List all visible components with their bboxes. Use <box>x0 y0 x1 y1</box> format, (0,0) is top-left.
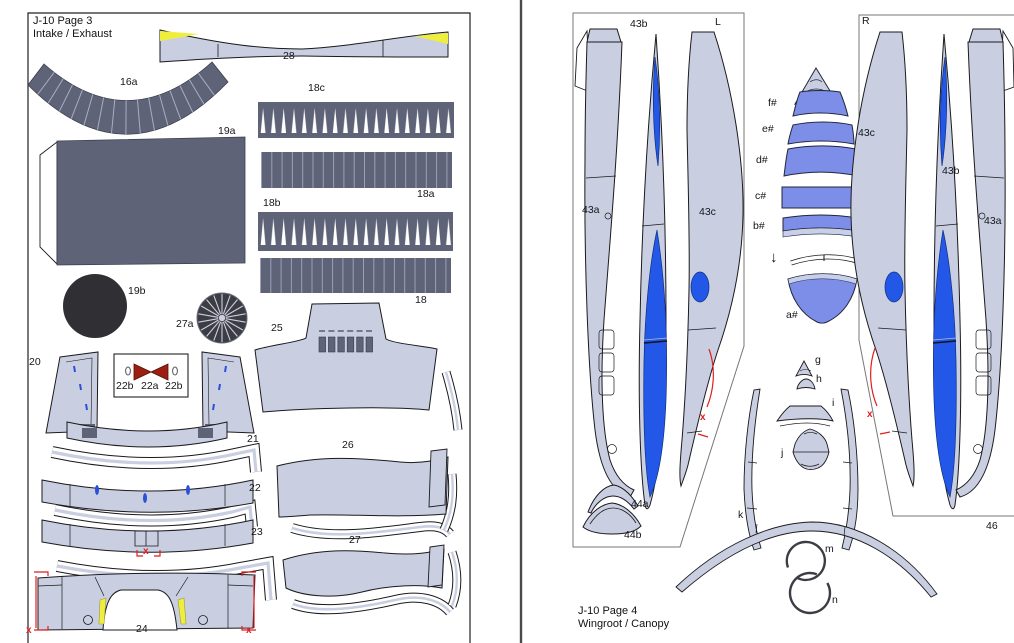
part-19a <box>40 137 245 265</box>
part-24 <box>34 572 256 630</box>
label-k: k <box>738 510 743 522</box>
page3-title-line1: J-10 Page 3 <box>33 15 92 27</box>
part-h <box>797 379 815 389</box>
part-j <box>793 429 829 470</box>
label-h: h <box>816 374 822 386</box>
blue-oval-mark <box>95 485 99 495</box>
label-20: 20 <box>29 357 41 369</box>
part-43b-left <box>639 34 667 509</box>
label-24: 24 <box>136 624 148 636</box>
label-22a: 22a <box>141 381 159 393</box>
canopy-segments <box>782 68 858 323</box>
part-22-band <box>42 480 253 512</box>
label-16a: 16a <box>120 77 138 89</box>
label-j: j <box>781 448 783 460</box>
papercraft-sheet: J-10 Page 3 Intake / Exhaust 28 16a 19a … <box>0 0 1014 643</box>
part-43b-right <box>933 34 961 509</box>
small-frame-parts <box>777 361 833 470</box>
segment-e <box>788 122 854 144</box>
label-c-sharp: c# <box>755 191 766 203</box>
blue-oval-mark <box>186 485 190 495</box>
label-23: 23 <box>251 527 263 539</box>
strip-27 <box>293 598 450 612</box>
part-i <box>777 406 833 421</box>
ring-parts <box>787 542 830 613</box>
label-i: i <box>832 398 834 410</box>
label-side-L: L <box>715 17 721 29</box>
part-27a <box>197 293 247 343</box>
label-18c: 18c <box>308 83 325 95</box>
blue-oval-mark <box>143 493 147 503</box>
red-x-mark: x <box>700 412 706 423</box>
label-43a-left: 43a <box>582 205 600 217</box>
part-43a-right <box>956 29 1014 497</box>
part-25 <box>255 303 437 412</box>
strip-26 <box>292 526 450 534</box>
part-18b <box>258 212 453 251</box>
label-g: g <box>815 355 821 367</box>
part-28 <box>160 30 448 62</box>
label-25: 25 <box>271 323 283 335</box>
label-m: m <box>825 544 834 556</box>
label-26: 26 <box>342 440 354 452</box>
part-k-bow <box>676 522 937 597</box>
label-e-sharp: e# <box>762 124 774 136</box>
label-43b-left: 43b <box>630 19 648 31</box>
page3-title-line2: Intake / Exhaust <box>33 28 112 40</box>
label-18a: 18a <box>417 189 435 201</box>
red-x-mark: x <box>143 546 149 557</box>
strip-right-c <box>452 552 457 606</box>
segment-d <box>784 146 858 176</box>
part-18c <box>258 102 454 138</box>
label-43b-right: 43b <box>942 166 960 178</box>
red-x-mark: x <box>867 409 873 420</box>
segment-c <box>782 187 857 208</box>
segment-b-pale-edge <box>783 228 858 237</box>
red-x-mark: x <box>26 625 32 636</box>
label-a-sharp: a# <box>786 310 798 322</box>
strip-21 <box>52 450 256 472</box>
label-n: n <box>832 595 838 607</box>
label-18: 18 <box>415 295 427 307</box>
strip-right-a <box>446 372 458 430</box>
label-43c-left: 43c <box>699 207 716 219</box>
label-22b-right: 22b <box>165 381 183 393</box>
label-18b: 18b <box>263 198 281 210</box>
label-44a: 44a <box>631 499 649 511</box>
label-19a: 19a <box>218 126 236 138</box>
label-19b: 19b <box>128 286 146 298</box>
label-46: 46 <box>986 521 998 533</box>
label-21: 21 <box>247 434 259 446</box>
part-18 <box>260 258 451 293</box>
label-b-sharp: b# <box>753 221 765 233</box>
red-x-mark: x <box>246 625 252 636</box>
label-22: 22 <box>249 483 261 495</box>
label-27: 27 <box>349 535 361 547</box>
label-22b-left: 22b <box>116 381 134 393</box>
part-g <box>796 361 812 376</box>
down-arrow-icon: ↓ <box>770 250 778 267</box>
label-side-R: R <box>862 16 870 28</box>
part-18a <box>261 152 452 188</box>
label-44b: 44b <box>624 530 642 542</box>
part-19b <box>63 274 127 338</box>
sheet-graphics <box>0 0 1014 643</box>
label-43a-right: 43a <box>984 216 1002 228</box>
label-f-sharp: f# <box>768 98 777 110</box>
part-43a-left <box>575 29 634 497</box>
left-rail <box>744 389 761 550</box>
part-43c-left <box>680 32 743 486</box>
canopy-glue-arc <box>791 255 860 263</box>
label-27a: 27a <box>176 319 194 331</box>
segment-f <box>793 91 848 117</box>
label-d-sharp: d# <box>756 155 768 167</box>
page4-title-line1: J-10 Page 4 <box>578 605 637 617</box>
page4-title-line2: Wingroot / Canopy <box>578 618 669 630</box>
label-43c-right: 43c <box>858 128 875 140</box>
part-27 <box>283 549 444 596</box>
part-26 <box>277 457 448 517</box>
label-28: 28 <box>283 51 295 63</box>
part-43c-right <box>851 32 914 486</box>
